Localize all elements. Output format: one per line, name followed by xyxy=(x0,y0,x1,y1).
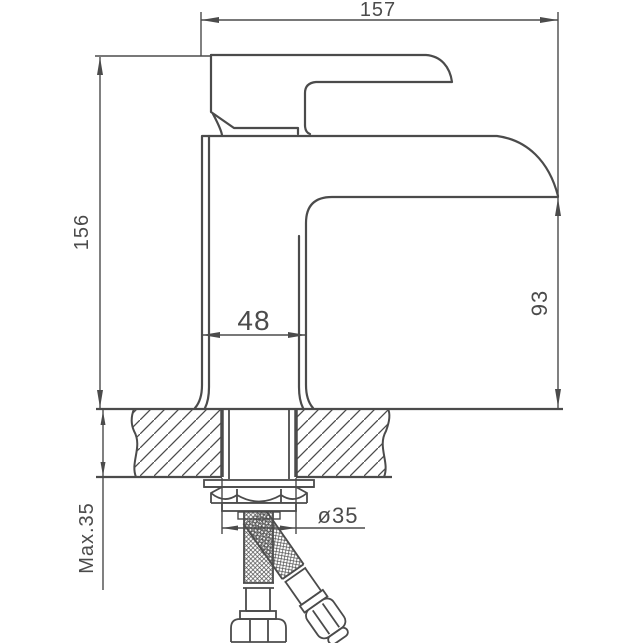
dim-label-deck-thickness: Max.35 xyxy=(76,502,98,574)
arrow-down-icon xyxy=(97,390,103,408)
faucet-lever xyxy=(211,55,452,125)
technical-drawing-canvas: 157 156 48 93 Max.35 ø35 xyxy=(0,0,643,643)
mounting-washer-lower xyxy=(222,503,296,511)
dimension-93 xyxy=(555,198,561,408)
hose-diagonal-nut xyxy=(303,595,349,641)
hose-vertical-nut xyxy=(231,619,286,642)
deck-hole-edges xyxy=(222,409,296,477)
hose-diagonal-nut-facets xyxy=(313,603,339,634)
hose-vertical-collar xyxy=(240,611,276,619)
hose-vertical-ferrule xyxy=(246,588,270,611)
deck-hatch-right xyxy=(296,409,389,477)
faucet-body-inner-right xyxy=(299,236,303,408)
faucet-body-spout-top xyxy=(195,136,558,408)
arrow-right-icon xyxy=(280,526,296,531)
hose-diagonal-collar xyxy=(300,590,328,613)
dimension-max35 xyxy=(101,409,106,590)
arrow-left-icon xyxy=(201,17,219,23)
dim-label-spout-height: 93 xyxy=(527,290,552,316)
hose-vertical-crimp xyxy=(243,583,274,588)
arrow-up-icon xyxy=(101,411,106,425)
faucet-outline xyxy=(195,55,558,408)
dim-label-hole-diameter: ø35 xyxy=(318,503,359,528)
dim-label-body-width: 48 xyxy=(237,305,270,336)
arrow-left-icon xyxy=(222,526,238,531)
arrow-right-icon xyxy=(288,332,306,338)
arrow-down-icon xyxy=(101,462,106,476)
faucet-dimension-drawing: 157 156 48 93 Max.35 ø35 xyxy=(0,0,643,643)
dimension-157 xyxy=(201,12,558,196)
hose-diagonal-end-cap xyxy=(326,626,349,643)
deck-hatch-left xyxy=(132,409,222,477)
hose-vertical-braid xyxy=(244,511,273,583)
hose-vertical-nut-facets xyxy=(250,620,268,642)
arrow-up-icon xyxy=(97,57,103,75)
faucet-spout-underside xyxy=(306,197,558,408)
arrow-down-icon xyxy=(555,389,561,407)
mounting-flange-washer xyxy=(204,480,314,487)
dim-label-overall-width: 157 xyxy=(360,0,396,21)
mounting-nut xyxy=(204,487,314,503)
faucet-shank-walls xyxy=(229,409,289,479)
faucet-body-inner-left xyxy=(205,136,209,408)
dimension-156 xyxy=(95,56,211,408)
mounting-deck xyxy=(96,409,563,479)
dim-label-overall-height: 156 xyxy=(71,214,93,250)
faucet-lever-left-edge xyxy=(211,55,298,134)
faucet-neck-foot xyxy=(305,125,310,134)
arrow-left-icon xyxy=(202,332,220,338)
arrow-right-icon xyxy=(540,17,558,23)
arrow-up-icon xyxy=(555,198,561,216)
